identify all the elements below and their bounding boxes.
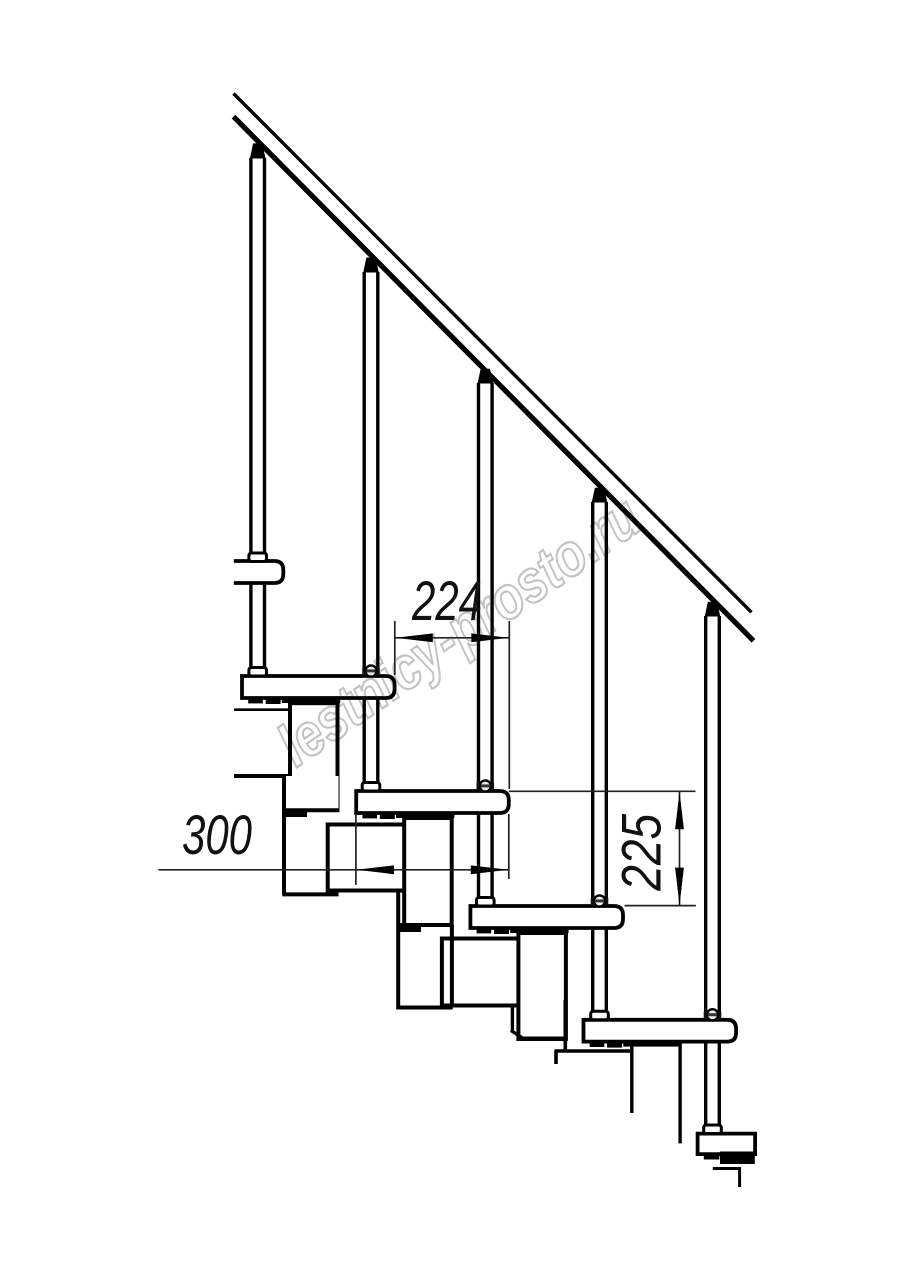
svg-text:225: 225 xyxy=(610,813,673,892)
svg-text:300: 300 xyxy=(182,803,252,866)
